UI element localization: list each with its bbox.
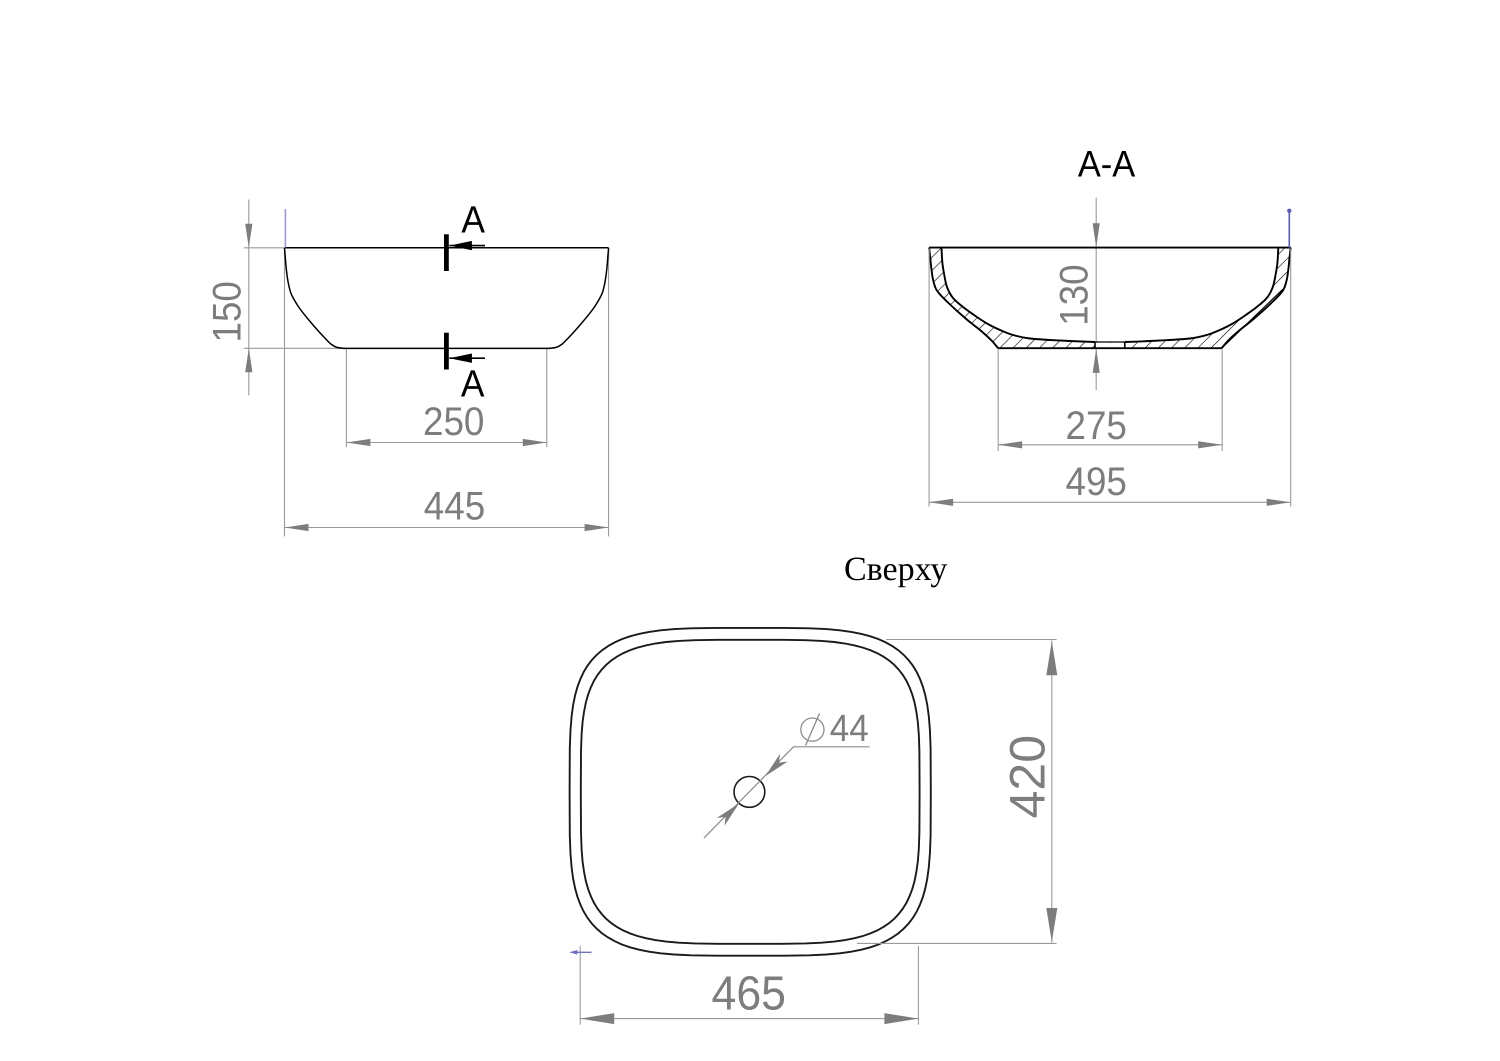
svg-text:250: 250: [423, 400, 484, 444]
svg-text:130: 130: [1053, 264, 1097, 325]
svg-text:Сверху: Сверху: [844, 551, 947, 588]
svg-text:465: 465: [712, 968, 786, 1021]
svg-text:A: A: [461, 200, 485, 242]
svg-text:275: 275: [1065, 404, 1126, 448]
svg-text:420: 420: [999, 735, 1055, 818]
svg-text:150: 150: [206, 281, 250, 342]
svg-text:445: 445: [424, 485, 485, 529]
svg-text:495: 495: [1065, 460, 1126, 504]
svg-text:44: 44: [830, 708, 869, 750]
svg-text:A: A: [461, 363, 485, 405]
svg-text:A-A: A-A: [1078, 144, 1136, 185]
